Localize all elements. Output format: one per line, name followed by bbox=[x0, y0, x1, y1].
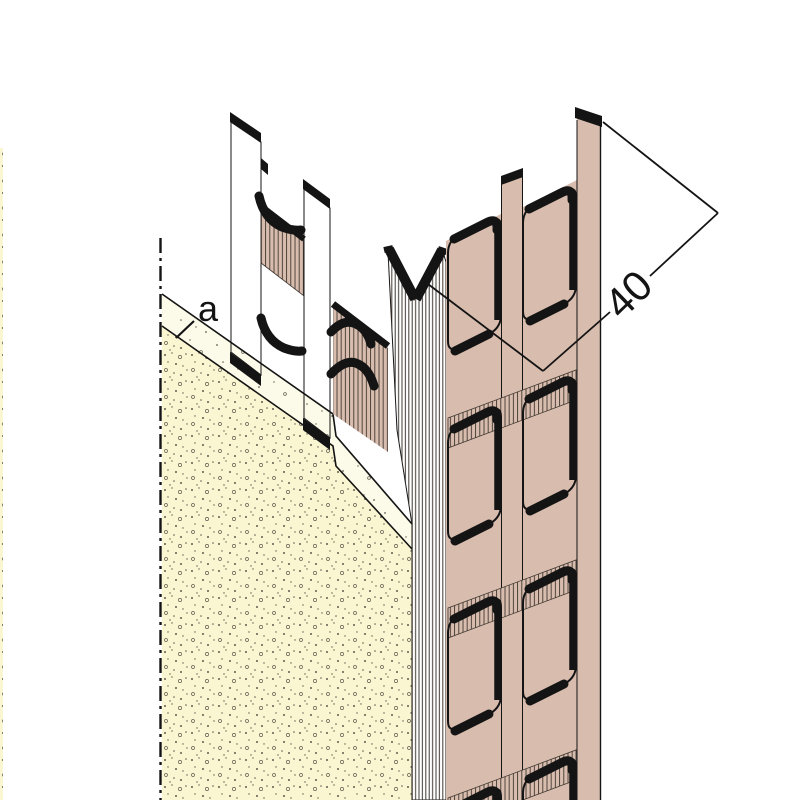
plaster-sliver-left-edge bbox=[0, 148, 3, 800]
label-plaster-thickness: a bbox=[198, 288, 219, 329]
right-flange bbox=[446, 107, 602, 800]
technical-drawing-corner-bead: a bbox=[0, 0, 800, 800]
drawing-canvas: a bbox=[0, 0, 800, 800]
